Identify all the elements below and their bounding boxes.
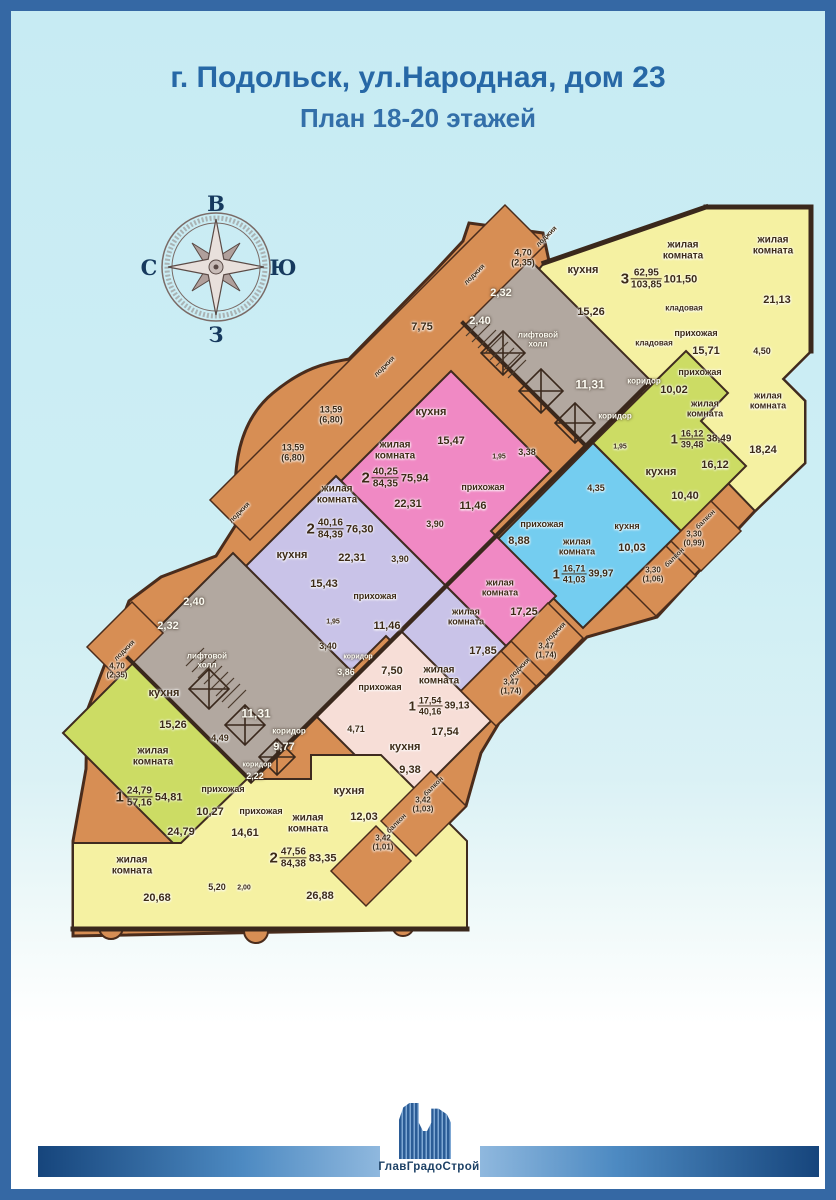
compass-label-east: В — [207, 191, 225, 216]
compass-label-south: Ю — [269, 255, 296, 280]
poster-page: г. Подольск, ул.Народная, дом 23 План 18… — [0, 0, 836, 1200]
footer-bar-left — [38, 1146, 380, 1177]
company-logo-text: ГлавГрадоСтрой — [349, 1161, 509, 1173]
compass-label-north: С — [141, 255, 158, 280]
compass-label-west: З — [208, 322, 223, 347]
floor-plan: В С Ю З — [11, 11, 836, 1200]
footer-bar-right — [480, 1146, 819, 1177]
compass-rose — [162, 213, 270, 321]
